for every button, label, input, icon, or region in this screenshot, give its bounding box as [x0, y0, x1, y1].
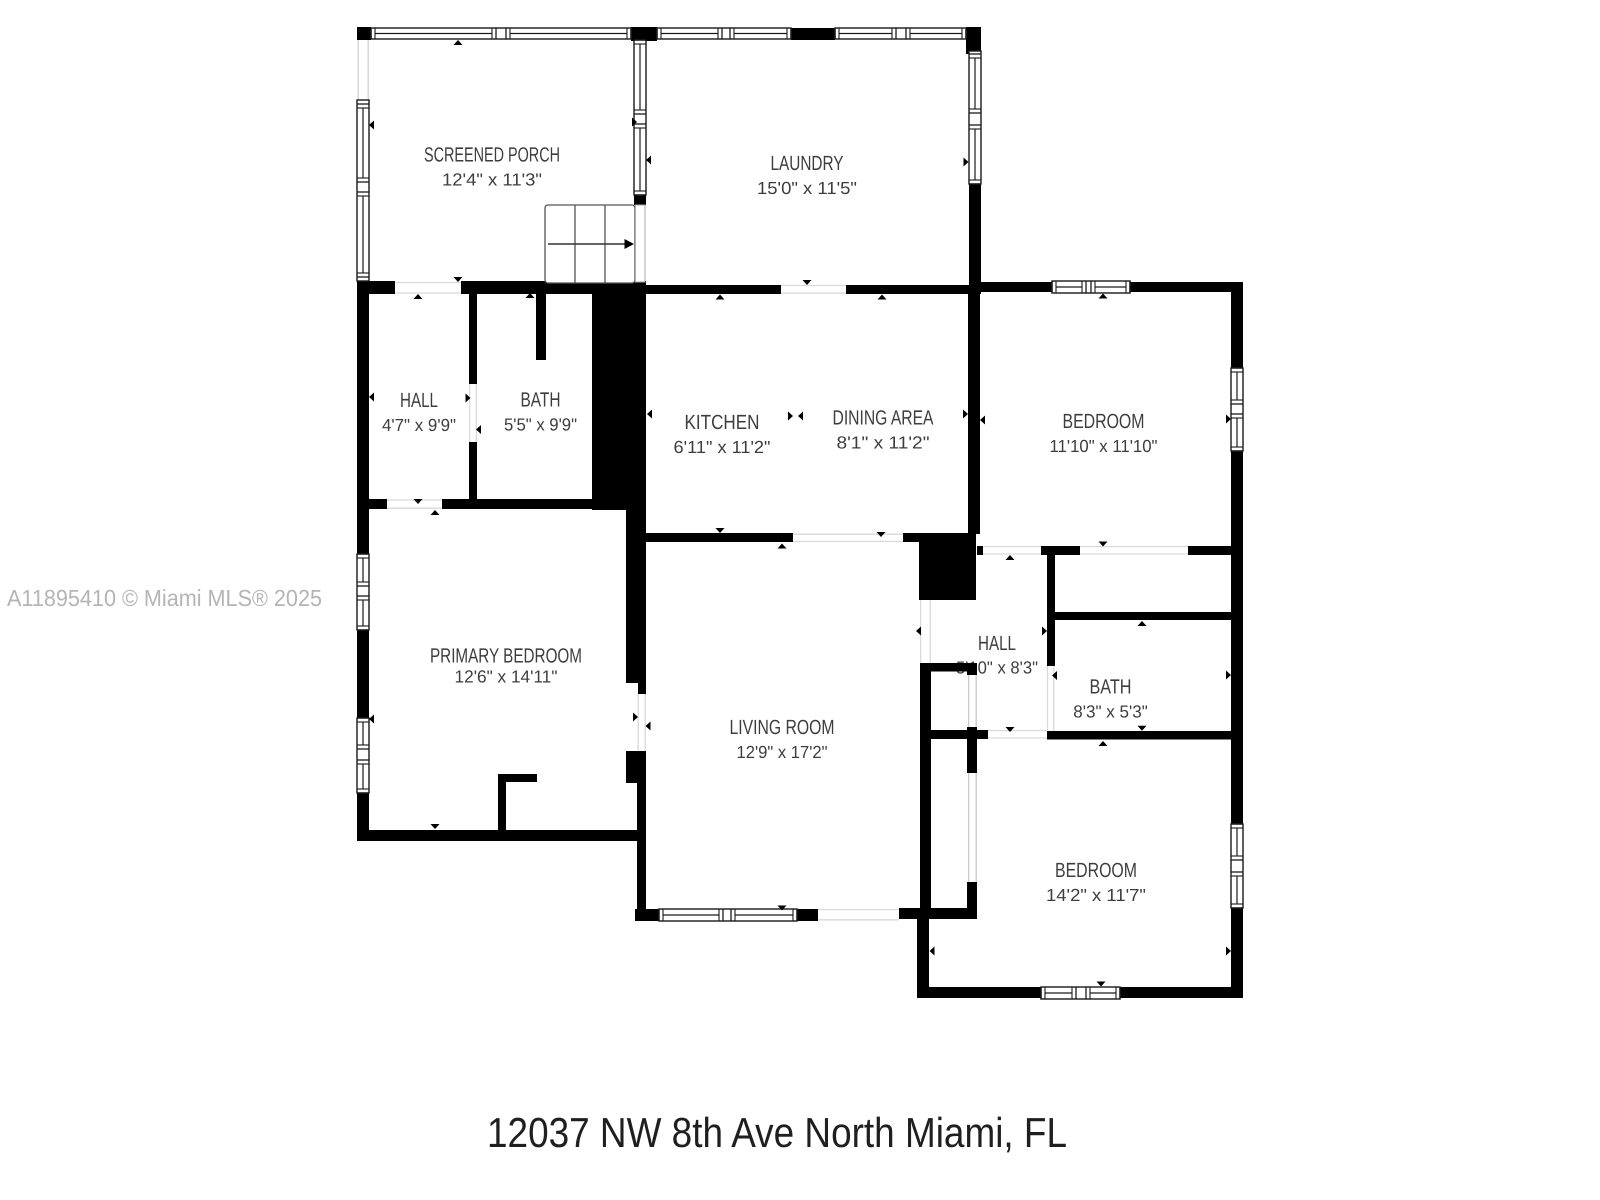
svg-text:6'11" x 11'2": 6'11" x 11'2"	[674, 437, 771, 457]
svg-text:LAUNDRY: LAUNDRY	[771, 152, 844, 175]
svg-text:BATH: BATH	[521, 389, 561, 412]
svg-text:HALL: HALL	[400, 389, 438, 412]
svg-text:PRIMARY BEDROOM: PRIMARY BEDROOM	[430, 645, 582, 668]
svg-text:12037 NW 8th Ave North Miami,: 12037 NW 8th Ave North Miami, FL	[487, 1109, 1067, 1156]
svg-text:14'2" x 11'7": 14'2" x 11'7"	[1046, 885, 1146, 905]
svg-text:LIVING ROOM: LIVING ROOM	[730, 716, 835, 739]
svg-text:8'3" x 5'3": 8'3" x 5'3"	[1073, 702, 1148, 722]
svg-text:HALL: HALL	[978, 632, 1016, 655]
svg-text:SCREENED PORCH: SCREENED PORCH	[424, 144, 560, 167]
svg-text:12'6" x 14'11": 12'6" x 14'11"	[455, 667, 558, 687]
svg-text:BATH: BATH	[1090, 676, 1132, 699]
svg-text:BEDROOM: BEDROOM	[1063, 410, 1145, 433]
svg-text:12'9" x 17'2": 12'9" x 17'2"	[737, 742, 828, 762]
svg-text:8'1" x 11'2": 8'1" x 11'2"	[837, 433, 930, 453]
svg-text:KITCHEN: KITCHEN	[685, 411, 760, 434]
svg-text:A11895410 © Miami MLS® 2025: A11895410 © Miami MLS® 2025	[7, 585, 322, 611]
svg-text:4'7" x 9'9": 4'7" x 9'9"	[382, 415, 456, 435]
svg-text:5'5" x 9'9": 5'5" x 9'9"	[504, 415, 577, 435]
svg-text:15'0" x 11'5": 15'0" x 11'5"	[757, 178, 857, 198]
svg-text:12'4" x 11'3": 12'4" x 11'3"	[442, 170, 542, 190]
svg-text:11'10" x 11'10": 11'10" x 11'10"	[1050, 436, 1158, 456]
svg-text:DINING AREA: DINING AREA	[833, 407, 934, 430]
svg-text:BEDROOM: BEDROOM	[1055, 859, 1137, 882]
